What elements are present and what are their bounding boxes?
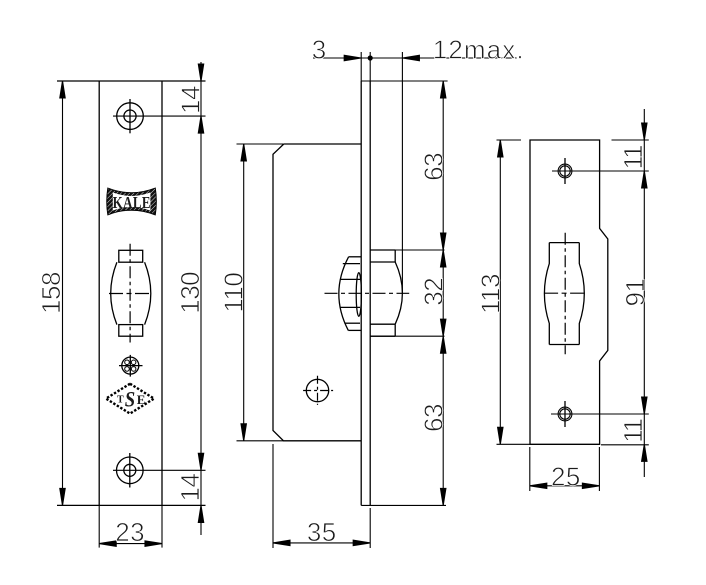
svg-text:63: 63 [418, 153, 448, 181]
svg-text:3: 3 [312, 35, 326, 65]
svg-text:S: S [125, 388, 135, 412]
svg-text:11: 11 [618, 145, 648, 170]
svg-text:23: 23 [115, 517, 145, 547]
svg-text:14: 14 [176, 86, 206, 114]
svg-text:25: 25 [551, 462, 581, 492]
svg-text:113: 113 [475, 274, 505, 314]
svg-text:158: 158 [36, 272, 66, 314]
svg-text:14: 14 [175, 474, 205, 502]
svg-text:32: 32 [419, 278, 449, 306]
svg-text:KALE: KALE [113, 195, 151, 213]
svg-text:110: 110 [218, 273, 248, 313]
svg-text:11: 11 [618, 418, 648, 443]
svg-text:12max.: 12max. [433, 35, 525, 65]
svg-text:130: 130 [175, 272, 205, 314]
svg-text:63: 63 [418, 404, 448, 432]
svg-text:91: 91 [620, 278, 650, 306]
svg-text:T: T [117, 395, 124, 406]
svg-text:E: E [137, 392, 146, 407]
svg-text:35: 35 [307, 517, 337, 547]
